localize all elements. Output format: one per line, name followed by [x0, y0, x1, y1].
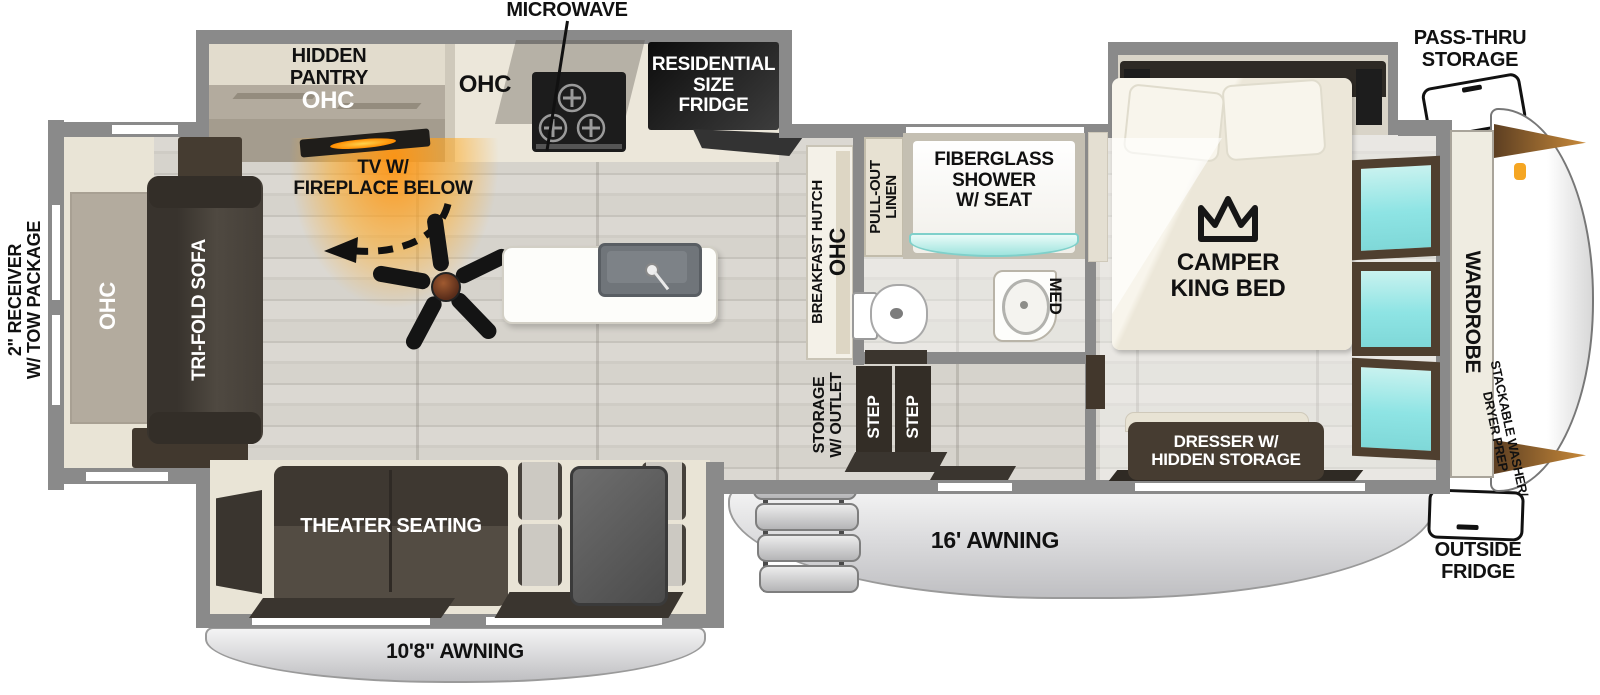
toilet-icon — [852, 284, 928, 342]
microwave-label: MICROWAVE — [487, 0, 647, 22]
shower-label: FIBERGLASS SHOWER W/ SEAT — [910, 150, 1078, 212]
slide-bottom-window — [252, 617, 430, 625]
wall-rear-top — [48, 122, 212, 137]
bed-pillow — [1221, 79, 1326, 162]
dinette-bench — [518, 462, 562, 520]
fireplace-flame-icon — [330, 136, 397, 151]
sofa-label-wrap: TRI-FOLD SOFA — [172, 220, 228, 400]
storage-outlet-label: STORAGE W/ OUTLET — [811, 372, 846, 457]
wall-bottom — [724, 480, 1450, 494]
hutch-label-wrap: BREAKFAST HUTCH OHC — [806, 145, 854, 359]
med-label-wrap: MED — [1039, 267, 1071, 325]
fridge: RESIDENTIAL SIZE FRIDGE — [648, 42, 779, 130]
floorplan-canvas: 16' AWNING 10'8" AWNING 2" RECEIVER W/ T… — [0, 0, 1600, 695]
awning-rear-label: 10'8" AWNING — [340, 641, 570, 664]
wardrobe-label: WARDROBE — [1461, 251, 1484, 373]
cap-handle — [1514, 163, 1526, 180]
rear-window — [52, 205, 60, 300]
wall-slide-right — [706, 462, 724, 628]
step-box-2: STEP — [895, 366, 931, 464]
island-sink-icon — [598, 243, 702, 297]
crown-icon — [1196, 196, 1260, 244]
theater-seating: THEATER SEATING — [274, 466, 508, 606]
dinette-table — [570, 466, 668, 606]
fridge-label: RESIDENTIAL SIZE FRIDGE — [652, 55, 775, 117]
wall-bedslide-top — [1108, 42, 1398, 55]
theater-label: THEATER SEATING — [300, 516, 481, 538]
dresser-label: DRESSER W/ HIDDEN STORAGE — [1151, 433, 1300, 470]
rear-bottom-window — [86, 472, 168, 481]
bed-label: CAMPER KING BED — [1130, 250, 1326, 302]
receiver-label: 2" RECEIVER W/ TOW PACKAGE — [6, 221, 45, 379]
slide-bottom-window — [486, 617, 662, 625]
dresser: DRESSER W/ HIDDEN STORAGE — [1128, 422, 1324, 480]
pantry-ohc-label: OHC — [288, 88, 368, 114]
bedroom-window-3 — [1352, 358, 1440, 461]
bath-threshold — [865, 350, 927, 364]
wall-slide-left — [196, 478, 210, 628]
theater-mat — [249, 598, 455, 618]
sofa-armrest-top — [149, 176, 261, 208]
rear-ohc-label: OHC — [96, 282, 120, 330]
bedslide-window-right — [1356, 69, 1382, 125]
bedroom-wardrobe-cabinet — [1086, 355, 1105, 409]
receiver-label-wrap: 2" RECEIVER W/ TOW PACKAGE — [0, 175, 53, 425]
pass-thru-door-handle — [1462, 84, 1483, 92]
step-tread — [757, 534, 861, 562]
step-tread — [755, 503, 859, 531]
rear-window — [52, 315, 60, 405]
rear-ohc-label-wrap: OHC — [80, 266, 136, 346]
med-label: MED — [1046, 278, 1064, 315]
step-tread — [759, 565, 859, 593]
slide-window-panel — [216, 490, 262, 594]
wall-pantry-left — [196, 30, 209, 150]
tv-label: TV W/ FIREPLACE BELOW — [288, 158, 478, 199]
wall-rear-bottom — [48, 468, 210, 484]
shower-pan — [909, 233, 1079, 257]
hutch-label: BREAKFAST HUTCH — [810, 180, 826, 324]
fan-hub — [431, 272, 461, 302]
dinette-bench — [518, 524, 562, 586]
rear-top-window — [112, 125, 178, 134]
pass-thru-label: PASS-THRU STORAGE — [1390, 28, 1550, 71]
sofa-label: TRI-FOLD SOFA — [190, 239, 211, 381]
linen-label: PULL-OUT LINEN — [868, 160, 900, 233]
fan-blade — [403, 294, 444, 353]
sofa-armrest-bottom — [149, 412, 261, 444]
outside-fridge-label: OUTSIDE FRIDGE — [1408, 540, 1548, 583]
step2-label: STEP — [904, 395, 922, 438]
linen-label-wrap: PULL-OUT LINEN — [859, 137, 909, 257]
entry-mat — [845, 452, 948, 472]
bottom-window — [1135, 483, 1365, 491]
step-box-1: STEP — [856, 366, 892, 464]
bed-nightstand-strip — [1088, 132, 1108, 262]
outside-fridge-door-handle — [1456, 524, 1478, 530]
wall-rear — [48, 120, 64, 490]
bottom-window — [938, 483, 1012, 491]
ceiling-fan-icon — [384, 225, 504, 345]
bedroom-window-1 — [1352, 156, 1440, 261]
kitchen-ohc-label: OHC — [450, 72, 520, 98]
bedroom-window-2 — [1352, 262, 1440, 356]
hidden-pantry-label: HIDDEN PANTRY — [254, 46, 404, 89]
storage-outlet-label-wrap: STORAGE W/ OUTLET — [802, 360, 854, 470]
door-mat — [930, 466, 1016, 480]
step1-label: STEP — [865, 395, 883, 438]
hutch-ohc-label: OHC — [826, 228, 850, 276]
awning-main-label: 16' AWNING — [880, 528, 1110, 553]
